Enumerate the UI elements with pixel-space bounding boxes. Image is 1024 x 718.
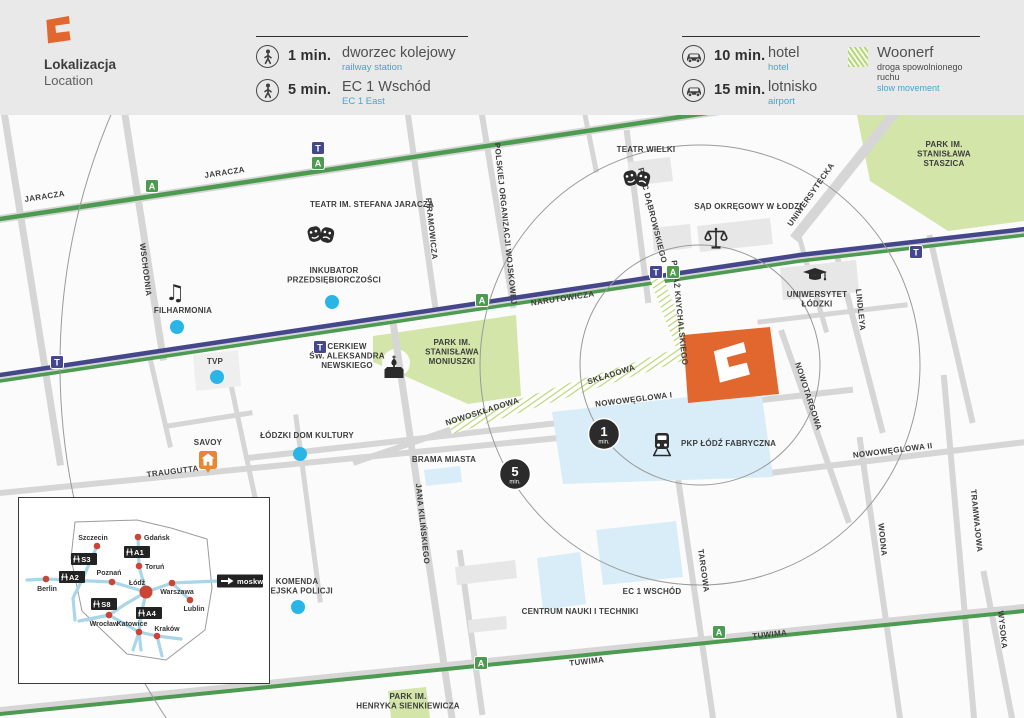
header: Lokalizacja Location 1 min. dworzec kole…	[0, 0, 1024, 115]
legend-row-hotel: 10 min. hotel hotel	[682, 45, 848, 73]
poi-brama-miasta: BRAMA MIASTA	[412, 455, 476, 464]
inset-city-label: Warszawa	[160, 589, 194, 596]
site-building	[683, 327, 779, 403]
inset-city-label: Toruń	[145, 564, 164, 571]
moskwa-direction-badge: moskwa	[217, 575, 268, 588]
legend-row-ec1: 5 min. EC 1 Wschód EC 1 East	[256, 79, 468, 107]
pedestrian-icon	[256, 79, 279, 102]
legend-time: 5 min.	[288, 79, 342, 98]
legend-time: 15 min.	[714, 79, 768, 98]
svg-text:T: T	[54, 357, 60, 367]
svg-text:A4: A4	[146, 609, 157, 618]
bus-stop-badge: A	[667, 266, 680, 279]
time-marker-1-min: 1min.	[589, 419, 620, 450]
bus-stop-badge: A	[713, 626, 726, 639]
svg-text:A: A	[670, 267, 677, 277]
page-subtitle: Location	[44, 73, 116, 88]
svg-text:A: A	[149, 181, 156, 191]
poi-label: SAVOY	[194, 438, 223, 447]
poi-label: EC 1 WSCHÓD	[623, 587, 682, 596]
legend-sublabel: railway station	[342, 62, 456, 73]
svg-text:S8: S8	[101, 600, 111, 609]
poi-label: TVP	[207, 357, 224, 366]
woonerf-desc-en: slow movement	[877, 83, 980, 93]
poi-dot	[170, 320, 184, 334]
woonerf-desc: droga spowolnionego ruchu	[877, 62, 980, 82]
inset-roads	[27, 537, 218, 656]
time-marker-5-min: 5min.	[500, 459, 531, 490]
inset-city-label: Łódź	[129, 580, 146, 587]
inset-city-gdańsk: Gdańsk	[135, 534, 170, 542]
legend-label: hotel	[768, 46, 799, 61]
poi-label: ŁÓDZKI DOM KULTURY	[260, 431, 354, 440]
legend-label: lotnisko	[768, 80, 817, 95]
woonerf-title: Woonerf	[877, 45, 980, 60]
legend-walk: 1 min. dworzec kolejowy railway station …	[256, 36, 468, 113]
inset-city-label: Gdańsk	[144, 535, 170, 542]
inset-city-label: Kraków	[154, 626, 180, 633]
car-icon	[682, 79, 705, 102]
svg-text:T: T	[653, 267, 659, 277]
ec1-building	[596, 521, 683, 585]
svg-text:5: 5	[511, 464, 518, 479]
svg-text:A: A	[478, 658, 485, 668]
svg-text:A2: A2	[69, 573, 79, 582]
svg-text:moskwa: moskwa	[237, 577, 268, 586]
tram-stop-badge: T	[312, 142, 325, 155]
inset-city-label: Poznań	[97, 570, 122, 577]
inset-city-label: Wrocław	[90, 621, 119, 628]
svg-text:min.: min.	[509, 480, 521, 486]
page-title: Lokalizacja	[44, 57, 116, 72]
motorway-badge-a2: A2	[59, 571, 85, 583]
poi-label: TEATR WIELKI	[617, 145, 676, 154]
svg-text:min.: min.	[598, 440, 610, 446]
legend-sublabel: EC 1 East	[342, 96, 431, 107]
inset-city-szczecin: Szczecin	[78, 535, 108, 549]
poi-label: CENTRUM NAUKI I TECHNIKI	[522, 607, 639, 616]
bus-stop-badge: A	[476, 294, 489, 307]
motorway-badge-a4: A4	[136, 607, 162, 619]
legend-rule	[682, 36, 980, 37]
motorway-badge-s8: S8	[91, 598, 117, 610]
legend-sublabel: airport	[768, 96, 817, 107]
location-map-page: { "colors":{"orange":"#E2672F","blue":"#…	[0, 0, 1024, 718]
bus-stop-badge: A	[312, 157, 325, 170]
legend-time: 1 min.	[288, 45, 342, 64]
inset-city-lublin: Lublin	[184, 597, 205, 613]
brand-logo-icon	[44, 14, 73, 47]
poi-dot	[325, 295, 339, 309]
bus-stop-badge: A	[146, 180, 159, 193]
poi-dot	[293, 447, 307, 461]
inset-city-label: Lublin	[184, 606, 205, 613]
ec1-building	[537, 552, 586, 610]
poi-label: FILHARMONIA	[154, 306, 212, 315]
bus-stop-badge: A	[475, 657, 488, 670]
poi-dot	[210, 370, 224, 384]
legend-label: dworzec kolejowy	[342, 46, 456, 61]
poi-centrum-nauki-i-techniki: CENTRUM NAUKI I TECHNIKI	[522, 607, 639, 616]
inset-city-label: Katowice	[117, 621, 148, 628]
note-icon	[165, 281, 185, 306]
svg-text:A: A	[716, 627, 723, 637]
car-icon	[682, 45, 705, 68]
legend-time: 10 min.	[714, 45, 768, 64]
legend-rule	[256, 36, 468, 37]
tram-stop-badge: T	[650, 266, 663, 279]
svg-text:A: A	[479, 295, 486, 305]
legend-drive: 10 min. hotel hotel 15 min. lotnisko air…	[682, 36, 980, 113]
legend-label: EC 1 Wschód	[342, 80, 431, 95]
svg-text:1: 1	[600, 424, 607, 439]
pedestrian-icon	[256, 45, 279, 68]
svg-text:T: T	[315, 143, 321, 153]
motorway-badge-a1: A1	[124, 546, 150, 558]
motorway-badge-s3: S3	[71, 553, 97, 565]
inset-city-label: Szczecin	[78, 535, 108, 542]
poi-label: PKP ŁÓDŹ FABRYCZNA	[681, 439, 776, 448]
svg-text:A: A	[315, 158, 322, 168]
svg-text:S3: S3	[81, 555, 91, 564]
svg-text:T: T	[317, 342, 323, 352]
poi-label: TEATR IM. STEFANA JARACZA	[310, 200, 434, 209]
poi-dot	[291, 600, 305, 614]
inset-city-label: Berlin	[37, 586, 57, 593]
legend-row-airport: 15 min. lotnisko airport	[682, 79, 848, 107]
tram-stop-badge: T	[910, 246, 923, 259]
poi-label: BRAMA MIASTA	[412, 455, 476, 464]
legend-sublabel: hotel	[768, 62, 799, 73]
poland-inset-map: SzczecinGdańskPoznańToruńŁódźWarszawaLub…	[18, 497, 270, 684]
svg-text:T: T	[913, 247, 919, 257]
poi-label: SĄD OKRĘGOWY W ŁODZI	[694, 202, 801, 211]
svg-text:A1: A1	[134, 548, 144, 557]
poi-ec1-wschod: EC 1 WSCHÓD	[623, 587, 682, 596]
legend-row-railway: 1 min. dworzec kolejowy railway station	[256, 45, 468, 73]
woonerf-hatch-icon	[848, 47, 868, 67]
brand: Lokalizacja Location	[44, 14, 116, 88]
tram-stop-badge: T	[314, 341, 327, 354]
tram-stop-badge: T	[51, 356, 64, 369]
legend-woonerf: Woonerf droga spowolnionego ruchu slow m…	[848, 45, 980, 113]
